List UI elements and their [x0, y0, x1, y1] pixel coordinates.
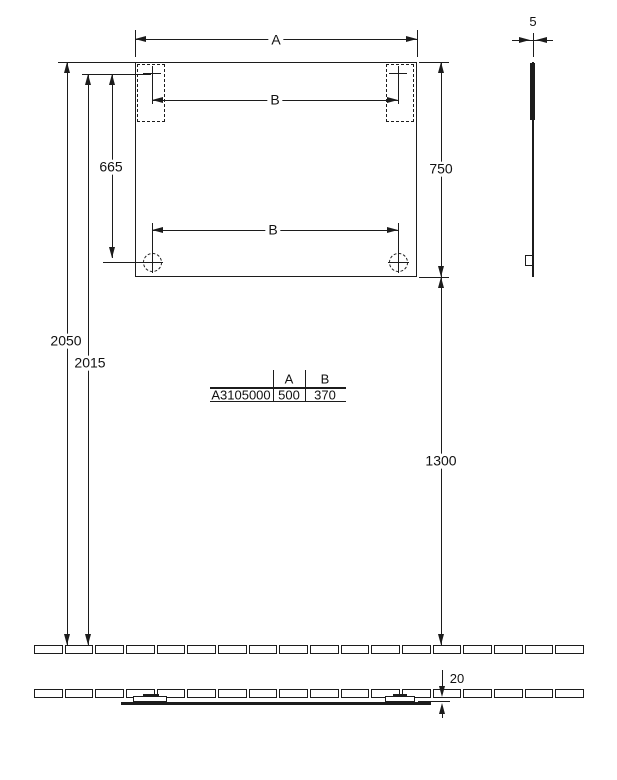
floor-segment	[310, 645, 339, 654]
floor-segment	[279, 645, 308, 654]
floor-segment	[126, 645, 155, 654]
table-model-number: A3105000	[211, 389, 270, 402]
ext-line	[417, 30, 418, 57]
arrow	[135, 36, 146, 42]
top-view-bracket-right	[385, 696, 415, 702]
arrow	[64, 62, 70, 73]
ext-line	[398, 223, 399, 252]
floor-segment	[555, 689, 584, 698]
dim-665-label: 665	[96, 160, 125, 175]
ext-line	[419, 62, 449, 63]
floor-segment	[310, 689, 339, 698]
side-view-bottom-mount	[525, 255, 533, 266]
floor-segment	[525, 689, 554, 698]
arrow	[438, 266, 444, 277]
floor-segment	[95, 645, 124, 654]
floor-segment	[34, 645, 63, 654]
top-view-bracket-left-tab	[143, 694, 159, 696]
dim-2015-label: 2015	[71, 356, 108, 371]
arrow	[438, 634, 444, 645]
table-value-a: 500	[278, 389, 300, 402]
arrow	[152, 227, 163, 233]
arrow	[438, 277, 444, 288]
arrow	[387, 97, 398, 103]
hanger-line-right	[398, 73, 399, 104]
side-view-hanging-rail	[530, 63, 535, 120]
dim-20-line-bottom	[442, 712, 443, 718]
ext-line	[103, 262, 143, 263]
floor-segment	[187, 645, 216, 654]
floor-segment	[341, 645, 370, 654]
dim-750-label: 750	[426, 162, 455, 177]
arrow	[519, 37, 530, 43]
arrow	[439, 686, 445, 697]
arrow	[406, 36, 417, 42]
arrow	[387, 227, 398, 233]
arrow	[109, 247, 115, 258]
dim-a-label: A	[268, 33, 283, 48]
floor-segment	[555, 645, 584, 654]
floor-segment	[34, 689, 63, 698]
screw-left-cross-h	[142, 262, 163, 263]
floor-segment	[494, 645, 523, 654]
floor-segment	[249, 645, 278, 654]
floor-segment	[157, 645, 186, 654]
ext-line	[82, 74, 151, 75]
arrow	[85, 74, 91, 85]
floor-segment	[249, 689, 278, 698]
technical-drawing: A B B 665 2015 2050 750 1300 5	[0, 0, 617, 780]
arrow	[85, 634, 91, 645]
top-view-bracket-left	[133, 696, 167, 702]
ext-line	[533, 33, 534, 57]
arrow	[536, 37, 547, 43]
dim-5-label: 5	[526, 15, 539, 29]
ext-line	[135, 30, 136, 57]
floor-line-upper	[34, 645, 584, 654]
floor-segment	[65, 645, 94, 654]
top-view-mirror	[121, 702, 431, 705]
floor-segment	[402, 645, 431, 654]
floor-segment	[65, 689, 94, 698]
screw-right-cross-h	[388, 262, 409, 263]
top-view-bracket-right-tab	[393, 694, 407, 696]
dim-2050-line	[67, 62, 68, 645]
arrow	[152, 97, 163, 103]
dim-b-bottom-label: B	[265, 223, 280, 238]
table-separator	[305, 370, 306, 401]
floor-segment	[341, 689, 370, 698]
table-value-b: 370	[314, 389, 336, 402]
dim-b-top-label: B	[267, 93, 282, 108]
floor-segment	[463, 689, 492, 698]
floor-segment	[525, 645, 554, 654]
ext-line	[419, 277, 449, 278]
floor-segment	[463, 645, 492, 654]
floor-segment	[187, 689, 216, 698]
floor-line-lower	[34, 689, 584, 698]
table-header-a: A	[285, 373, 294, 386]
floor-segment	[433, 689, 462, 698]
ext-line	[418, 701, 450, 702]
floor-segment	[218, 689, 247, 698]
floor-segment	[279, 689, 308, 698]
dim-20-label: 20	[447, 672, 467, 686]
floor-segment	[494, 689, 523, 698]
floor-segment	[218, 645, 247, 654]
table-header-b: B	[321, 373, 330, 386]
table-separator	[273, 370, 274, 401]
arrow	[438, 62, 444, 73]
arrow	[64, 634, 70, 645]
dim-2050-label: 2050	[47, 334, 84, 349]
floor-segment	[371, 645, 400, 654]
floor-segment	[433, 645, 462, 654]
floor-segment	[95, 689, 124, 698]
arrow	[109, 74, 115, 85]
dim-1300-label: 1300	[422, 454, 459, 469]
